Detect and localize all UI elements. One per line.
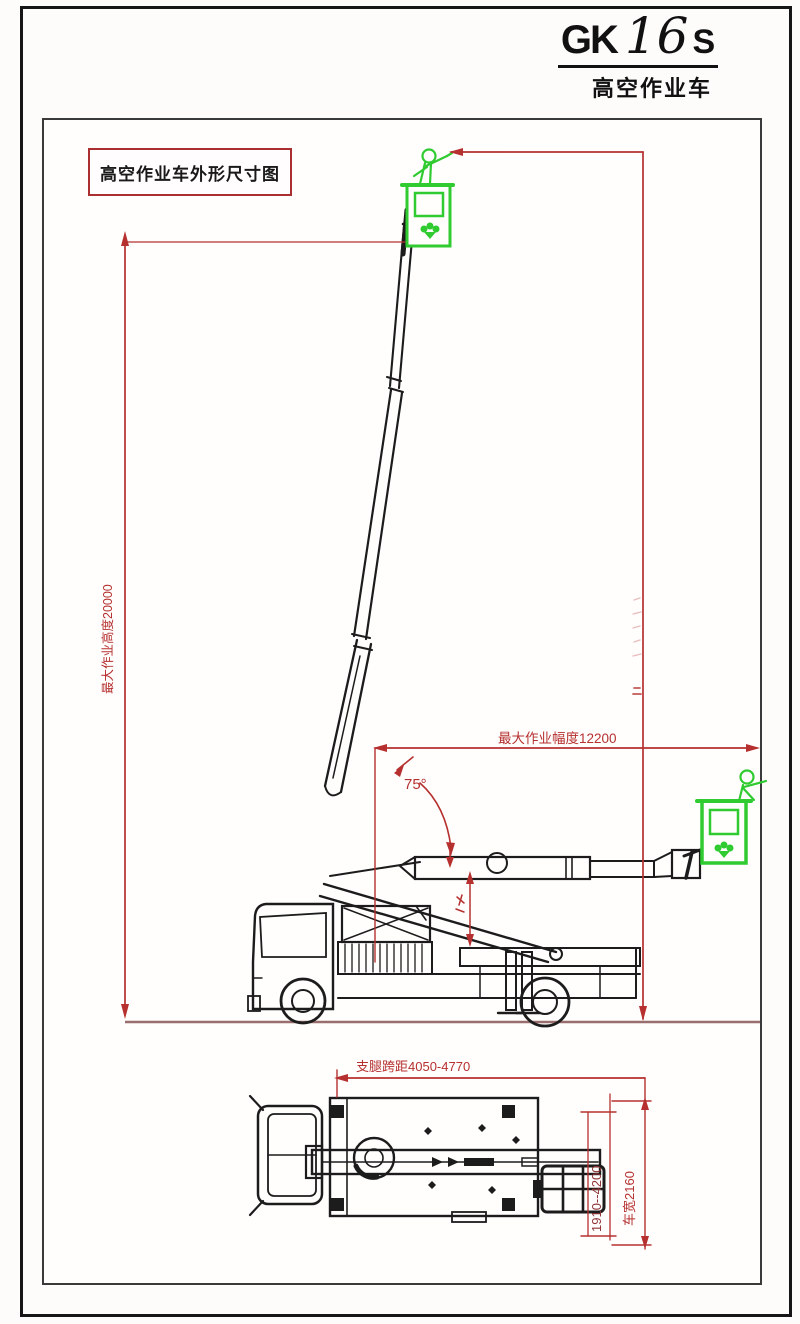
front-wheel	[281, 979, 325, 1023]
dim-label-vehicle-width: 车宽2160	[622, 1171, 637, 1226]
top-basket	[402, 185, 453, 246]
dim-label-lateral-span: 1910--4200	[589, 1166, 604, 1233]
dimension-overall-height-line	[449, 148, 647, 1021]
right-basket-assembly	[697, 771, 766, 864]
truck-chassis	[338, 942, 640, 998]
dimension-vehicle-width: 车宽2160	[612, 1078, 651, 1249]
mirror-arm-top	[250, 1096, 263, 1110]
right-basket	[697, 801, 751, 863]
dimension-drawing: 最大作业高度20000	[0, 0, 800, 1324]
drawing-sheet: GK 16 S 高空作业车 高空作业车外形尺寸图	[0, 0, 800, 1324]
dim-label-outrigger-span: 支腿跨距4050-4770	[356, 1059, 470, 1074]
operator-figure-top	[414, 150, 452, 185]
side-view-truck	[248, 210, 700, 1026]
plan-stowed-boom	[306, 1146, 600, 1178]
plan-turret	[354, 1138, 394, 1178]
faded-dim-marks	[633, 598, 641, 656]
dim-label-max-radius: 最大作业幅度12200	[498, 731, 617, 746]
truck-cab	[248, 904, 333, 1011]
mirror-arm-bottom	[250, 1201, 263, 1215]
dim-label-boom-angle: 75°	[404, 776, 427, 793]
dimension-annotations: 最大作业高度20000	[100, 148, 760, 1021]
horizontal-boom	[400, 850, 700, 879]
dimension-outrigger-span: 支腿跨距4050-4770	[334, 1059, 645, 1097]
dim-label-max-height: 最大作业高度20000	[100, 584, 115, 694]
top-basket-assembly	[402, 150, 453, 247]
rear-wheel	[521, 978, 569, 1026]
operator-figure-right	[739, 771, 766, 802]
dimension-max-height: 最大作业高度20000	[100, 231, 405, 1019]
raised-boom	[325, 210, 414, 795]
plan-view-truck	[250, 1096, 604, 1222]
faded-dim-mark-dark	[633, 688, 641, 694]
dimension-boom-angle: 75°	[394, 757, 455, 856]
